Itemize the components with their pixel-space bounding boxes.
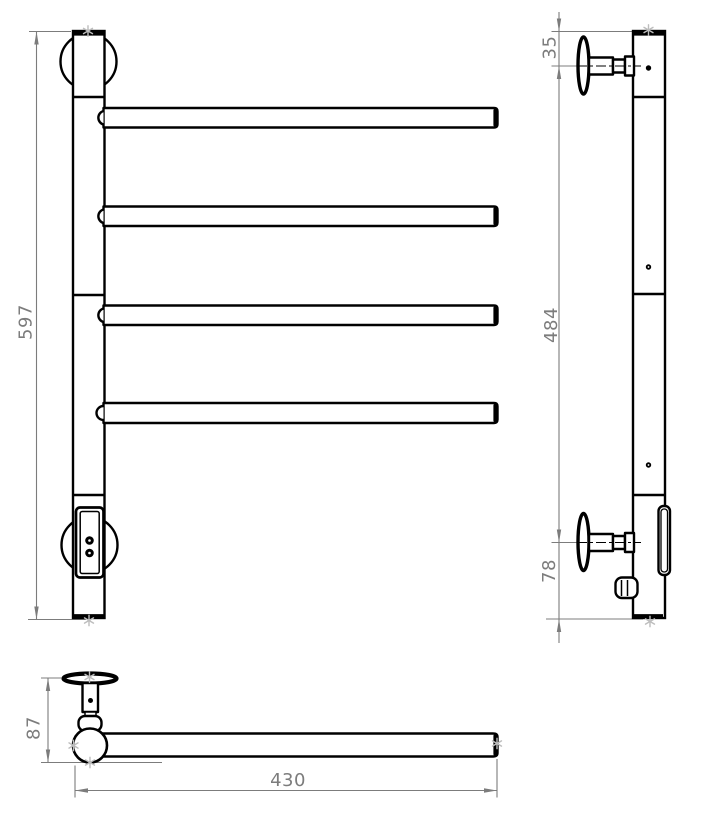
towel-bar-1 bbox=[98, 108, 497, 128]
power-button-center bbox=[88, 539, 91, 542]
screw-hole-center bbox=[648, 464, 650, 466]
arrowhead-down bbox=[557, 19, 561, 32]
towel-bar-3 bbox=[98, 306, 497, 326]
arrowhead-up bbox=[34, 32, 38, 45]
dim-text-bracket-span: 484 bbox=[541, 307, 562, 343]
dim-text-bottom-offset: 78 bbox=[539, 559, 560, 583]
screw-hole-center bbox=[648, 266, 650, 268]
gland-body bbox=[616, 578, 638, 599]
dim-text-front-height: 597 bbox=[15, 304, 36, 340]
dim-text-top-depth: 87 bbox=[23, 716, 44, 740]
towel-bar-2 bbox=[98, 207, 497, 227]
screw-hole-icon bbox=[88, 698, 93, 703]
cable-gland bbox=[616, 578, 638, 599]
technical-drawing-page: 597 35 484 78 87 430 bbox=[0, 0, 710, 814]
wall-bracket-bottom bbox=[577, 514, 641, 571]
arrowhead-up bbox=[557, 619, 561, 632]
towel-bar-plan bbox=[101, 734, 498, 757]
arrowhead-up bbox=[557, 66, 561, 79]
mode-button-center bbox=[88, 552, 91, 555]
screw-hole-icon bbox=[646, 65, 651, 70]
arrowhead-down bbox=[34, 607, 38, 620]
front-view bbox=[61, 31, 498, 618]
arrowhead-down bbox=[46, 750, 50, 763]
bracket-flange bbox=[578, 37, 589, 94]
dim-text-bar-length: 430 bbox=[270, 770, 306, 791]
towel-bar-4 bbox=[97, 403, 498, 423]
top-view bbox=[64, 674, 498, 763]
arrowhead-up bbox=[46, 678, 50, 691]
panel-profile-outer bbox=[659, 506, 671, 575]
towel-rail-drawing: 597 35 484 78 87 430 bbox=[0, 0, 710, 814]
control-panel-profile bbox=[659, 506, 671, 575]
arrowhead-right bbox=[484, 788, 497, 792]
arrowhead-left bbox=[75, 788, 88, 792]
arrowhead-down bbox=[557, 530, 561, 543]
dimension-bar-length: 430 bbox=[75, 759, 497, 798]
side-view bbox=[577, 31, 670, 618]
dim-text-top-offset: 35 bbox=[539, 36, 560, 60]
bracket-stem-plan bbox=[83, 683, 99, 712]
endpoint-markers bbox=[69, 25, 655, 768]
bracket-flange bbox=[578, 514, 589, 571]
control-panel bbox=[76, 508, 104, 578]
